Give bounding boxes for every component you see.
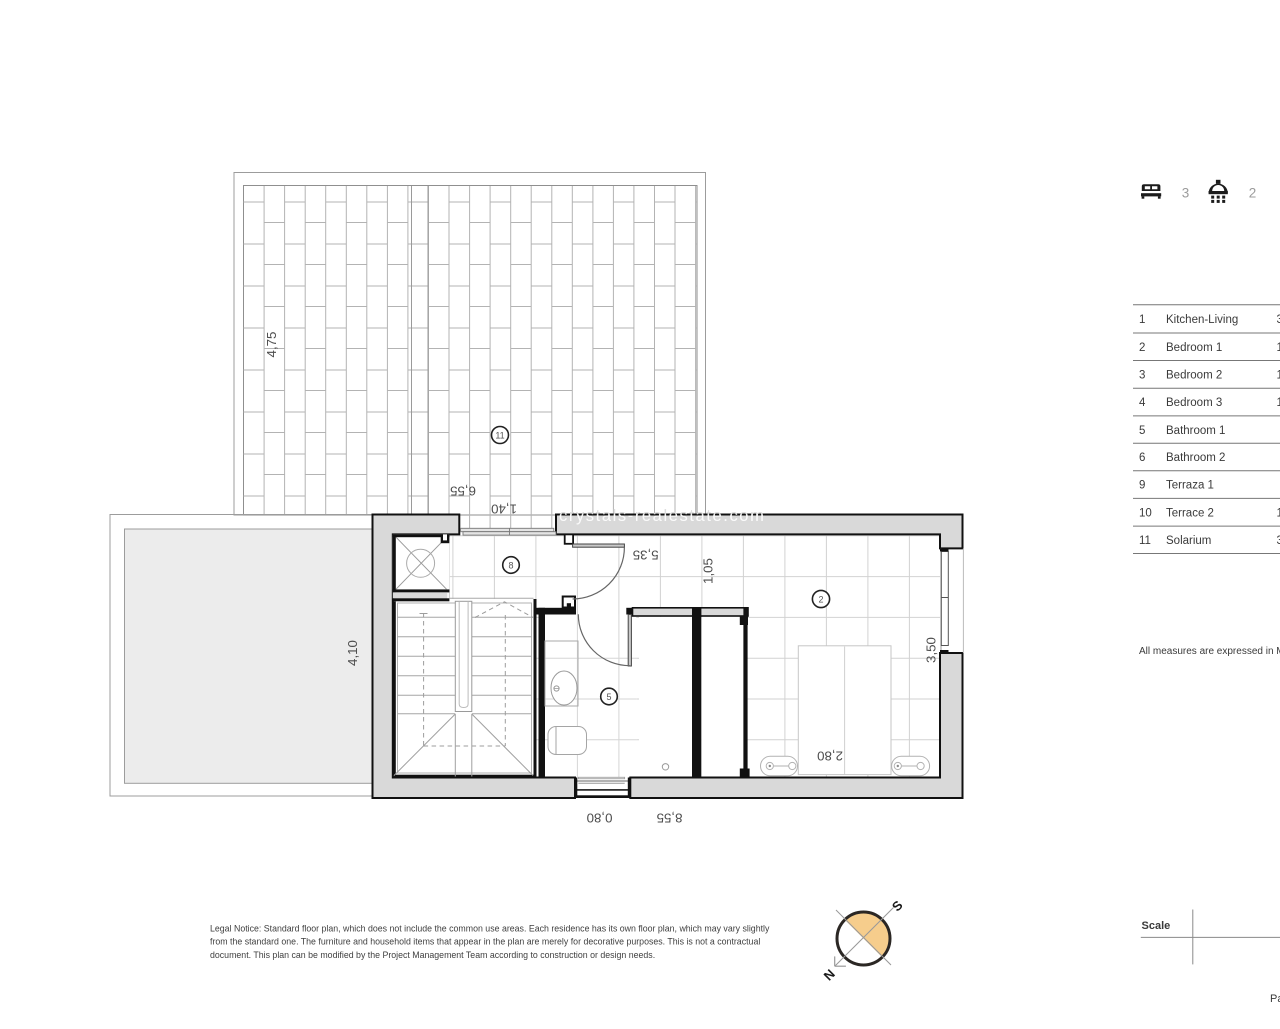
svg-text:9: 9 — [1139, 480, 1145, 492]
svg-text:2,80: 2,80 — [817, 749, 843, 764]
svg-text:Kitchen-Living: Kitchen-Living — [1166, 314, 1238, 326]
svg-text:Solarium: Solarium — [1166, 535, 1211, 547]
svg-text:1: 1 — [1139, 314, 1145, 326]
svg-text:8: 8 — [508, 561, 513, 571]
svg-text:Bedroom 3: Bedroom 3 — [1166, 397, 1222, 409]
svg-text:1,40: 1,40 — [491, 502, 517, 517]
svg-text:5: 5 — [606, 692, 611, 702]
svg-text:2: 2 — [1249, 186, 1257, 201]
svg-text:3: 3 — [1182, 186, 1190, 201]
svg-text:4: 4 — [1139, 397, 1146, 409]
svg-text:6,55: 6,55 — [450, 484, 476, 499]
svg-text:Legal Notice: Standard floor p: Legal Notice: Standard floor plan, which… — [210, 924, 770, 934]
svg-text:6: 6 — [1139, 452, 1145, 464]
svg-text:3: 3 — [1277, 535, 1280, 547]
svg-text:1,05: 1,05 — [701, 558, 716, 584]
svg-text:1: 1 — [1277, 508, 1280, 520]
svg-text:1: 1 — [1277, 342, 1280, 354]
svg-text:Terraza 1: Terraza 1 — [1166, 480, 1214, 492]
svg-text:5: 5 — [1139, 425, 1145, 437]
svg-text:10: 10 — [1139, 508, 1152, 520]
svg-text:5,35: 5,35 — [633, 548, 659, 563]
svg-text:11: 11 — [1139, 535, 1151, 547]
svg-text:Scale: Scale — [1142, 920, 1171, 932]
svg-text:document. This plan can be mod: document. This plan can be modified by t… — [210, 950, 655, 960]
svg-text:1: 1 — [1277, 370, 1280, 382]
svg-text:Bathroom 1: Bathroom 1 — [1166, 425, 1225, 437]
svg-text:8,55: 8,55 — [657, 811, 683, 826]
svg-text:Bathroom 2: Bathroom 2 — [1166, 452, 1225, 464]
svg-text:All measures are expressed in: All measures are expressed in Meters — [1139, 646, 1280, 657]
svg-text:1: 1 — [1277, 397, 1280, 409]
svg-text:4,10: 4,10 — [345, 640, 360, 666]
svg-text:2: 2 — [1139, 342, 1145, 354]
svg-text:11: 11 — [495, 431, 504, 441]
svg-text:3: 3 — [1139, 370, 1145, 382]
svg-text:3,50: 3,50 — [924, 637, 939, 663]
svg-text:from the standard one. The fur: from the standard one. The furniture and… — [210, 937, 760, 947]
svg-text:0,80: 0,80 — [587, 811, 613, 826]
svg-text:Bedroom 2: Bedroom 2 — [1166, 370, 1222, 382]
svg-text:Bedroom 1: Bedroom 1 — [1166, 342, 1222, 354]
svg-text:3: 3 — [1277, 314, 1280, 326]
svg-text:Terrace 2: Terrace 2 — [1166, 508, 1214, 520]
svg-text:4,75: 4,75 — [264, 332, 279, 358]
svg-text:2: 2 — [818, 595, 823, 605]
svg-text:Pa: Pa — [1270, 993, 1280, 1005]
